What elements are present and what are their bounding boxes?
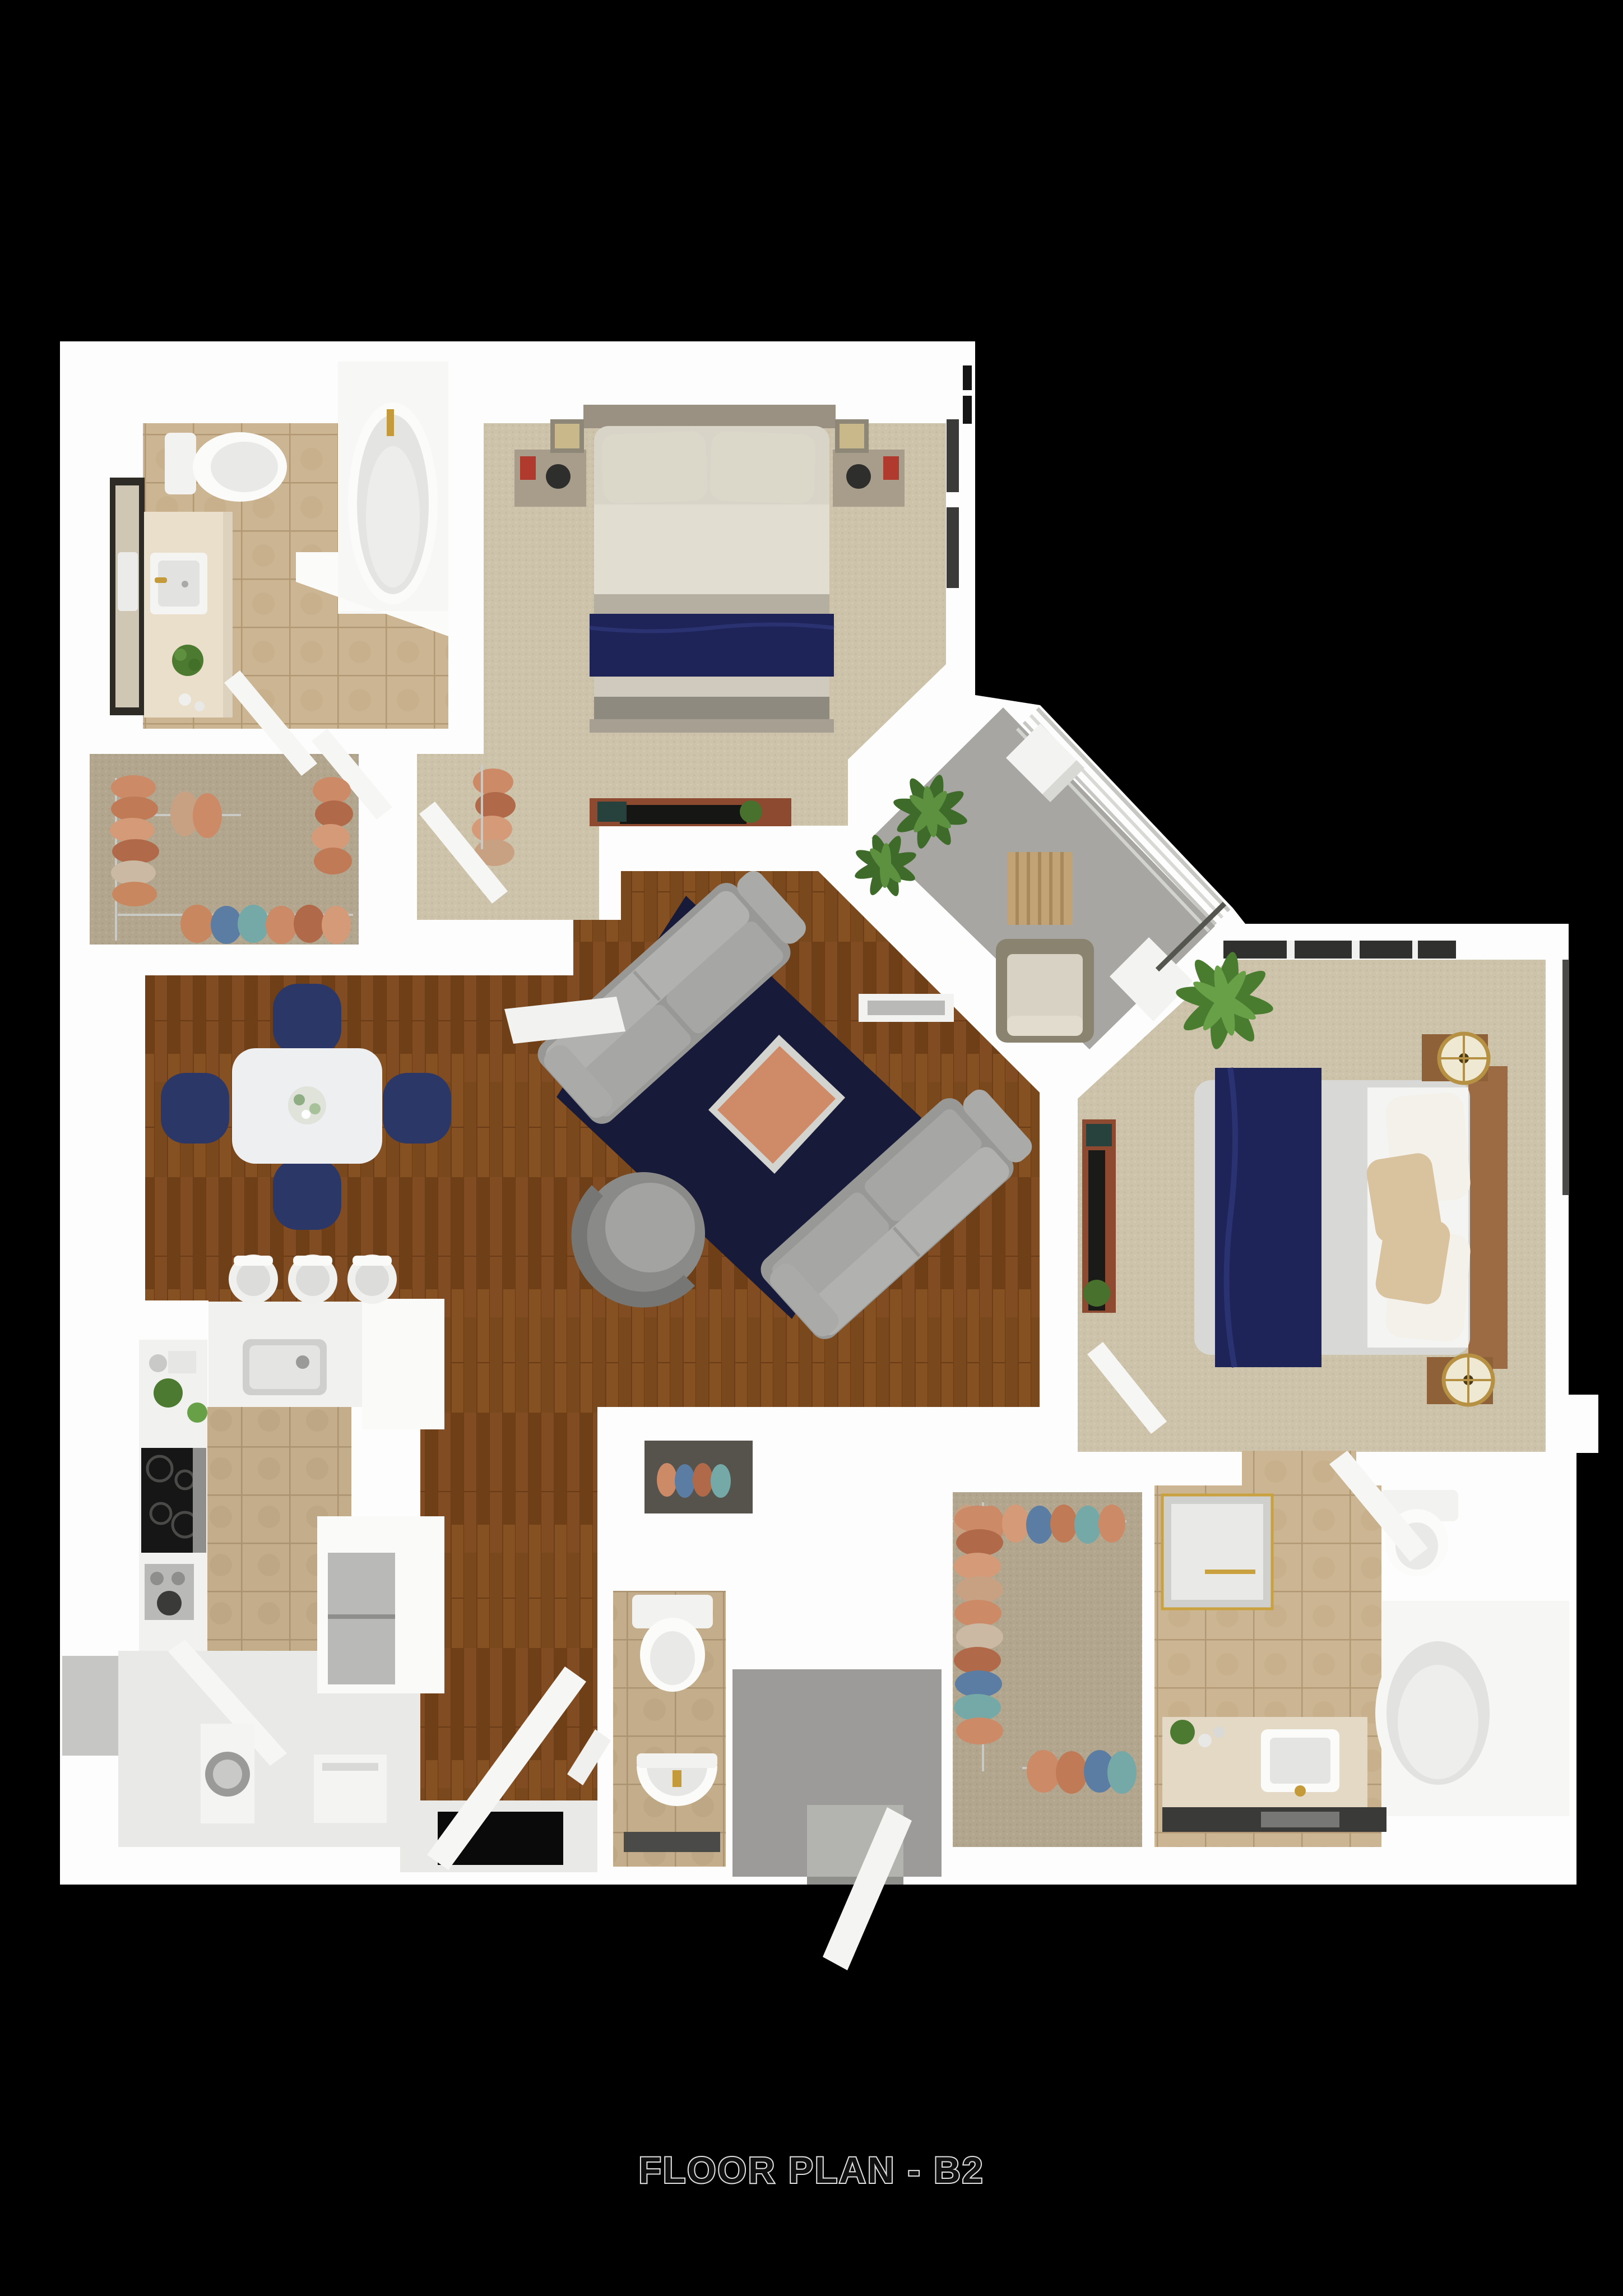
svg-text:FLOOR PLAN - B2: FLOOR PLAN - B2 (639, 2149, 985, 2191)
